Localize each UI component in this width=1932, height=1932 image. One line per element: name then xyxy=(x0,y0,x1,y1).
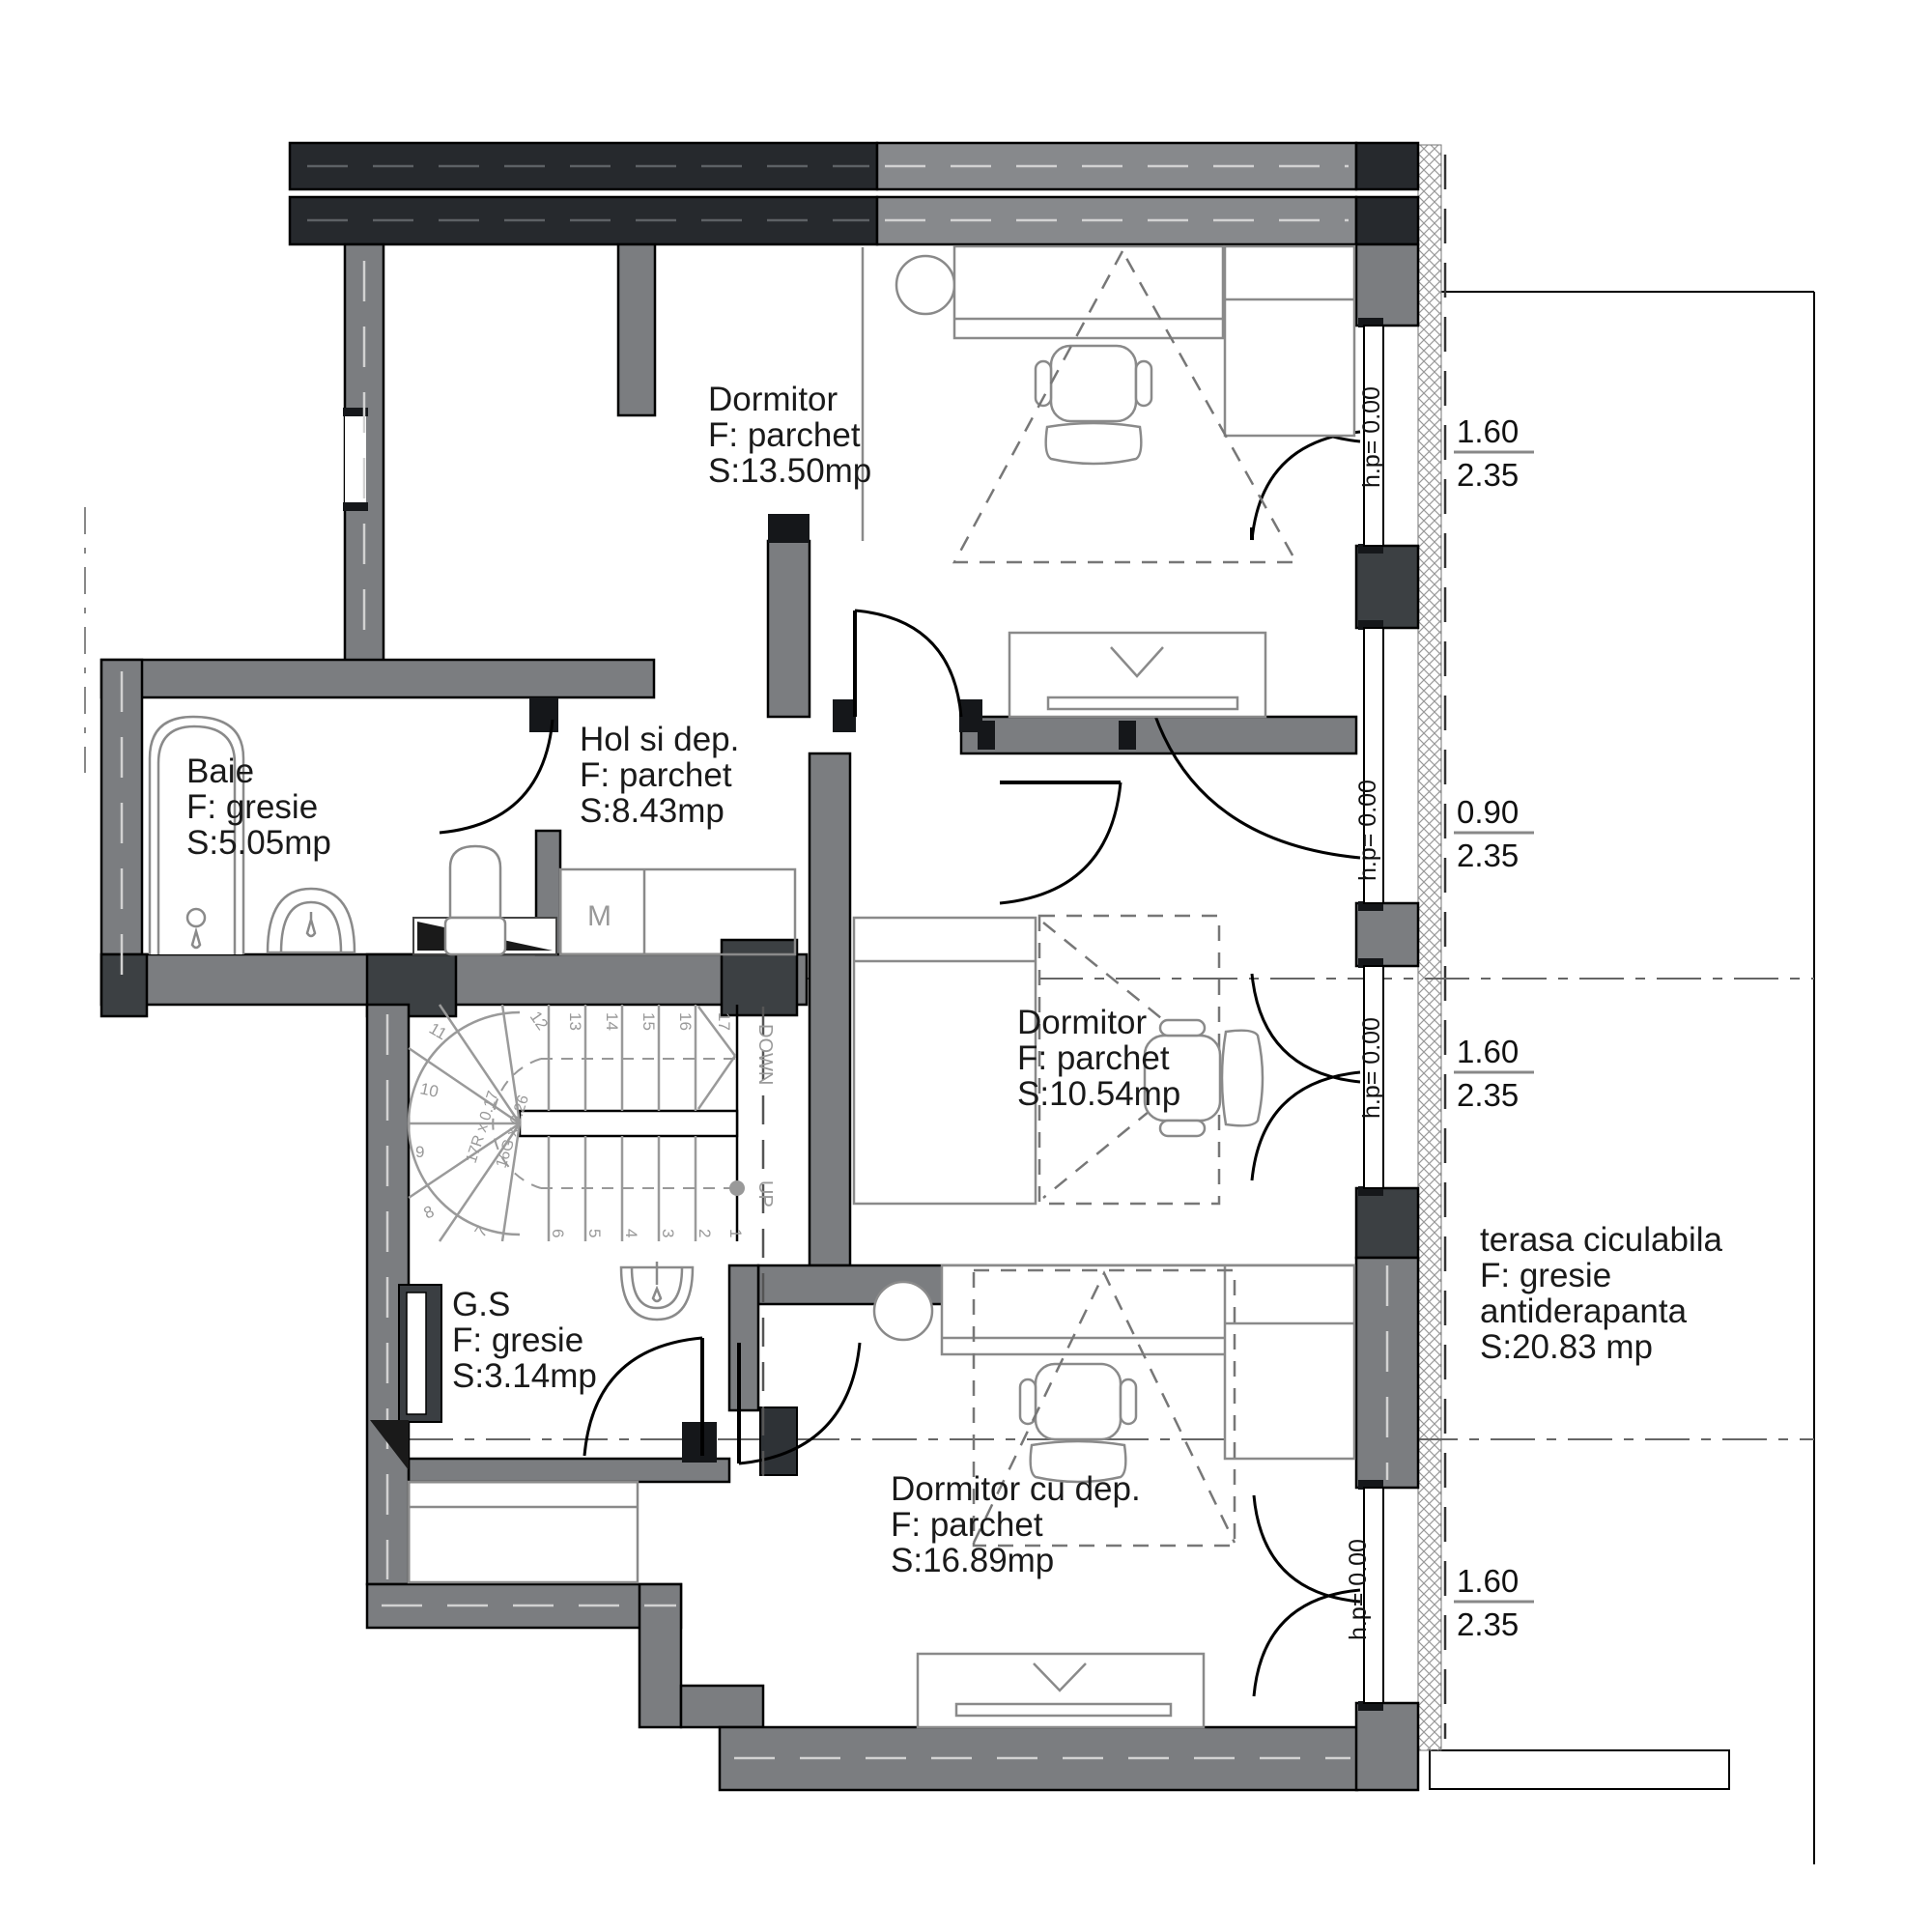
label-dormitor-top-3: S:13.50mp xyxy=(708,452,871,490)
floor-plan-drawing: Dormitor F: parchet S:13.50mp Baie F: gr… xyxy=(0,0,1932,1932)
chair-icon xyxy=(1036,346,1151,464)
stair-num-17: 17 xyxy=(715,1012,733,1031)
stair-num-9: 9 xyxy=(415,1143,424,1161)
wall-right-e xyxy=(1356,903,1418,966)
insulation-hatch-strip xyxy=(1418,145,1441,1750)
label-dormitor-bottom-1: Dormitor cu dep. xyxy=(891,1470,1141,1508)
label-hol-2: F: parchet xyxy=(580,756,732,794)
w2-width: 0.90 xyxy=(1457,794,1519,830)
label-dormitor-bottom-3: S:16.89mp xyxy=(891,1542,1054,1579)
stair-num-2: 2 xyxy=(696,1229,714,1237)
stair-num-4: 4 xyxy=(622,1229,640,1237)
stair-num-7: 7 xyxy=(471,1223,492,1241)
stair-num-3: 3 xyxy=(659,1229,677,1237)
desk-icon xyxy=(942,1265,1246,1354)
stair-down-label: DOWN xyxy=(754,1024,776,1085)
wall-step-j xyxy=(681,1686,763,1727)
wall-stub-upper xyxy=(618,244,655,415)
wall-band1-end xyxy=(1356,143,1418,189)
terrace-slab-edge xyxy=(1430,1750,1729,1789)
w1-width: 1.60 xyxy=(1457,413,1519,449)
label-dormitor-mid-1: Dormitor xyxy=(1017,1004,1148,1041)
stair-num-8: 8 xyxy=(421,1202,438,1222)
bed-icon xyxy=(1225,246,1354,436)
w1-height: 2.35 xyxy=(1457,457,1519,493)
wall-bed2-left xyxy=(810,753,850,1265)
w4-width: 1.60 xyxy=(1457,1563,1519,1599)
w2-sill: h.p= 0.00 xyxy=(1354,780,1381,881)
w1-sill: h.p= 0.00 xyxy=(1358,386,1385,488)
stair-num-15: 15 xyxy=(639,1012,658,1031)
w4-sill: h.p= 0.00 xyxy=(1345,1539,1372,1640)
stair-num-1: 1 xyxy=(726,1229,745,1237)
label-dormitor-mid-3: S:10.54mp xyxy=(1017,1075,1180,1113)
label-gs-1: G.S xyxy=(452,1286,510,1323)
desk-icon xyxy=(954,246,1223,338)
label-terasa-2: F: gresie xyxy=(1480,1257,1611,1294)
walk-line-start-dot xyxy=(729,1180,745,1196)
wall-band2-end xyxy=(1356,197,1418,244)
wall-bath-top xyxy=(101,660,654,697)
door-bedroom-top xyxy=(855,611,961,717)
w3-sill: h.p= 0.00 xyxy=(1358,1017,1385,1119)
label-baie-3: S:5.05mp xyxy=(186,824,331,862)
stair-num-6: 6 xyxy=(549,1229,567,1237)
stairs xyxy=(409,1005,745,1241)
floor-plan-page: Dormitor F: parchet S:13.50mp Baie F: gr… xyxy=(0,0,1932,1932)
stair-num-5: 5 xyxy=(585,1229,604,1237)
toilet-icon xyxy=(450,846,500,918)
stool-icon xyxy=(874,1282,932,1340)
wall-right-a xyxy=(1356,244,1418,326)
label-washer: M xyxy=(587,900,611,932)
door-bathroom xyxy=(440,720,553,833)
w3-height: 2.35 xyxy=(1457,1077,1519,1113)
label-hol-3: S:8.43mp xyxy=(580,792,724,830)
label-baie-1: Baie xyxy=(186,753,254,790)
wall-right-c xyxy=(1356,546,1418,628)
label-dormitor-top-2: F: parchet xyxy=(708,416,861,454)
label-hol-1: Hol si dep. xyxy=(580,721,739,758)
wall-right-j xyxy=(1356,1703,1418,1790)
door-bedroom-mid xyxy=(1000,782,1121,903)
stair-num-16: 16 xyxy=(676,1012,695,1031)
label-terasa-4: S:20.83 mp xyxy=(1480,1328,1653,1366)
wall-right-g xyxy=(1356,1188,1418,1258)
label-dormitor-top-1: Dormitor xyxy=(708,381,838,418)
stool-icon xyxy=(896,256,954,314)
w3-width: 1.60 xyxy=(1457,1034,1519,1069)
label-terasa-1: terasa ciculabila xyxy=(1480,1221,1722,1259)
wall-gs-bottom xyxy=(409,1459,729,1482)
label-baie-2: F: gresie xyxy=(186,788,318,826)
label-gs-3: S:3.14mp xyxy=(452,1357,597,1395)
chair-icon xyxy=(1020,1364,1136,1482)
w4-height: 2.35 xyxy=(1457,1606,1519,1642)
stair-num-10: 10 xyxy=(418,1079,440,1101)
stair-spine xyxy=(520,1111,737,1136)
label-dormitor-bottom-2: F: parchet xyxy=(891,1506,1043,1544)
bed-icon xyxy=(1225,1265,1354,1459)
storage-void xyxy=(409,1482,638,1582)
wall-hall-right xyxy=(768,541,810,717)
label-gs-2: F: gresie xyxy=(452,1321,583,1359)
stair-num-13: 13 xyxy=(566,1012,584,1031)
w2-height: 2.35 xyxy=(1457,838,1519,873)
stair-up-label: UP xyxy=(754,1180,776,1207)
label-dormitor-mid-2: F: parchet xyxy=(1017,1039,1170,1077)
wall-gs-right xyxy=(729,1265,758,1410)
stair-num-14: 14 xyxy=(603,1012,621,1031)
label-terasa-3: antiderapanta xyxy=(1480,1293,1688,1330)
furniture-gs xyxy=(621,1262,693,1320)
